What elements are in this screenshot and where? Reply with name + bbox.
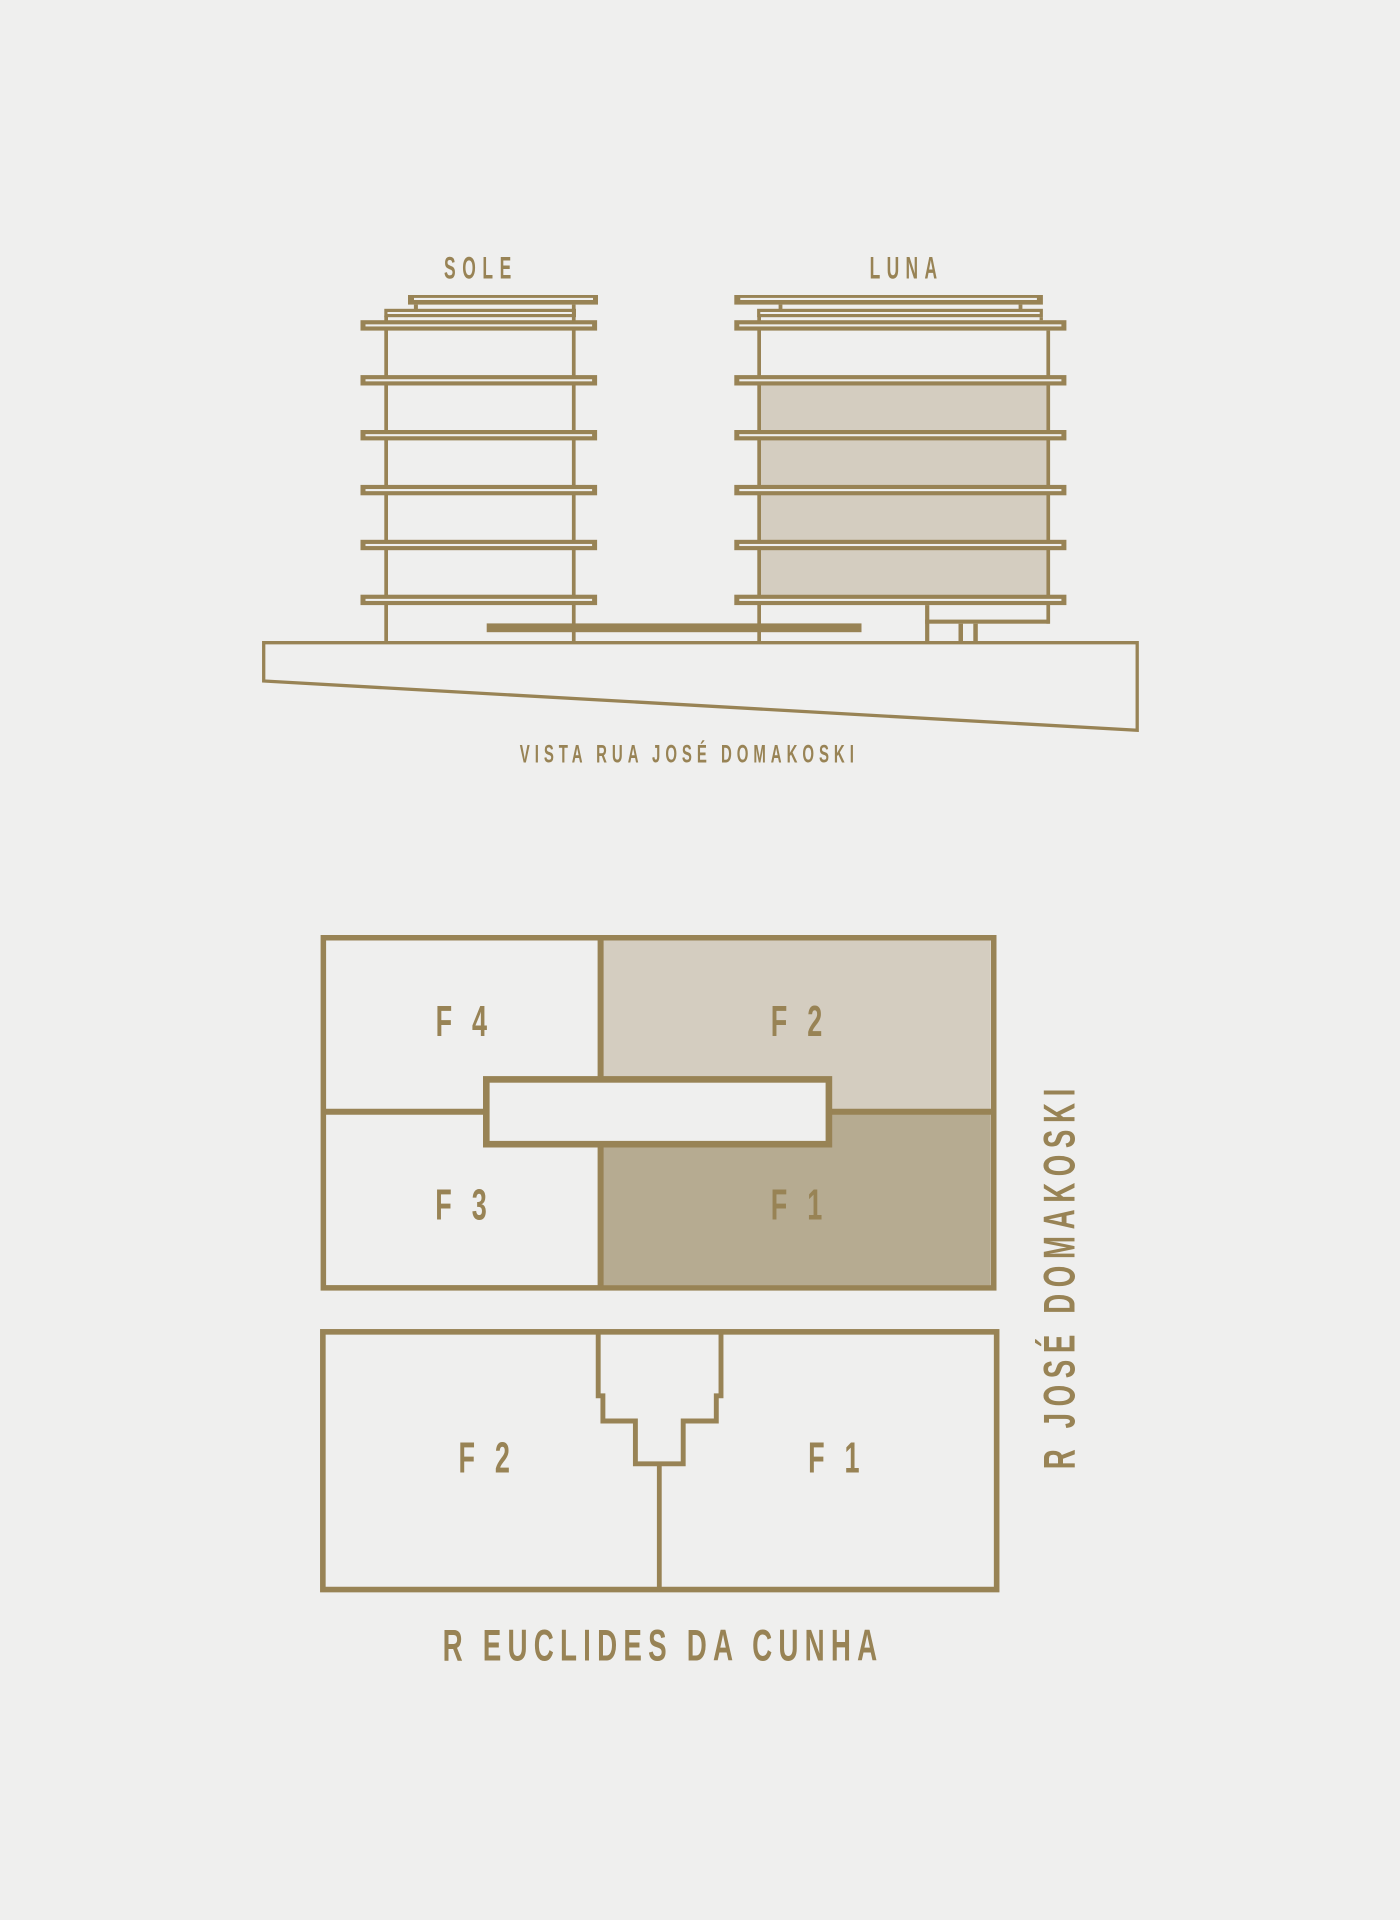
svg-text:F 1: F 1: [808, 1433, 866, 1482]
svg-text:F 1: F 1: [771, 1180, 829, 1229]
svg-text:VISTA RUA JOSÉ DOMAKOSKI: VISTA RUA JOSÉ DOMAKOSKI: [520, 741, 859, 769]
svg-text:SOLE: SOLE: [444, 251, 518, 286]
svg-text:F 3: F 3: [435, 1180, 493, 1229]
svg-text:LUNA: LUNA: [870, 251, 944, 286]
svg-text:F 4: F 4: [436, 997, 494, 1046]
svg-text:R JOSÉ DOMAKOSKI: R JOSÉ DOMAKOSKI: [1034, 1082, 1084, 1469]
svg-text:F 2: F 2: [771, 997, 829, 1046]
svg-text:R EUCLIDES DA CUNHA: R EUCLIDES DA CUNHA: [443, 1620, 884, 1670]
svg-text:F 2: F 2: [458, 1433, 516, 1482]
